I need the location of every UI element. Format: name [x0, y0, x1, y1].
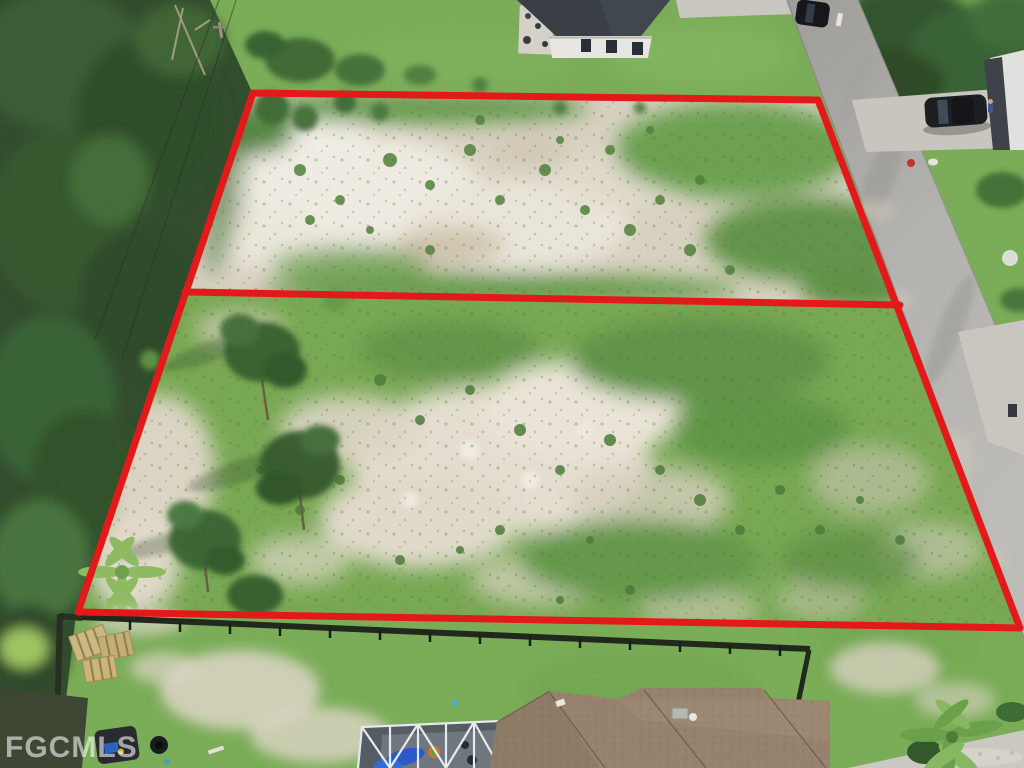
photo-grain — [0, 0, 1024, 768]
aerial-photo-canvas: FGCMLS — [0, 0, 1024, 768]
aerial-photo: FGCMLS — [0, 0, 1024, 768]
